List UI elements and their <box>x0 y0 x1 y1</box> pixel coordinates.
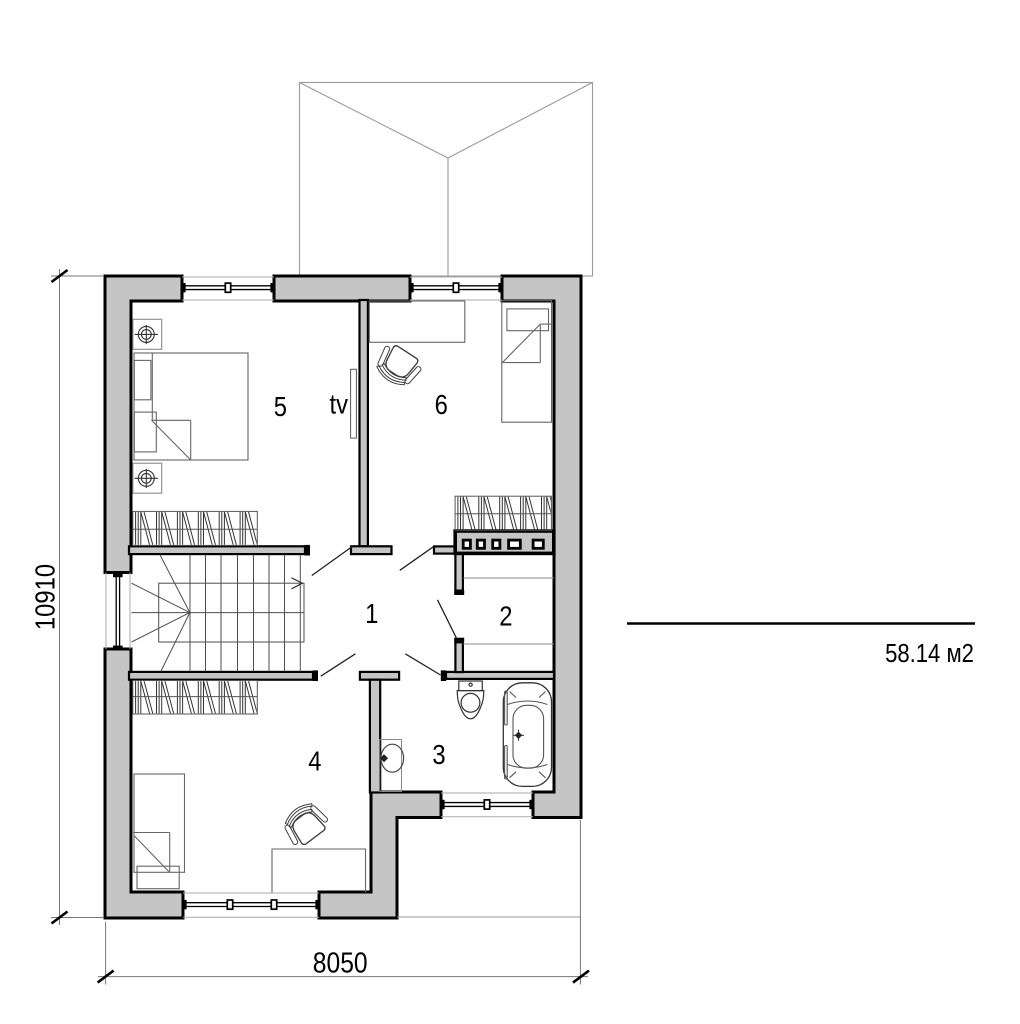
svg-text:3: 3 <box>432 738 445 770</box>
svg-text:4: 4 <box>308 745 321 777</box>
svg-text:6: 6 <box>435 388 448 420</box>
svg-text:10910: 10910 <box>29 564 61 630</box>
svg-text:tv: tv <box>330 388 349 420</box>
svg-text:1: 1 <box>365 597 378 629</box>
svg-text:5: 5 <box>274 390 287 422</box>
svg-text:2: 2 <box>499 600 512 632</box>
svg-text:8050: 8050 <box>313 946 368 978</box>
svg-text:58.14 м2: 58.14 м2 <box>885 639 974 668</box>
